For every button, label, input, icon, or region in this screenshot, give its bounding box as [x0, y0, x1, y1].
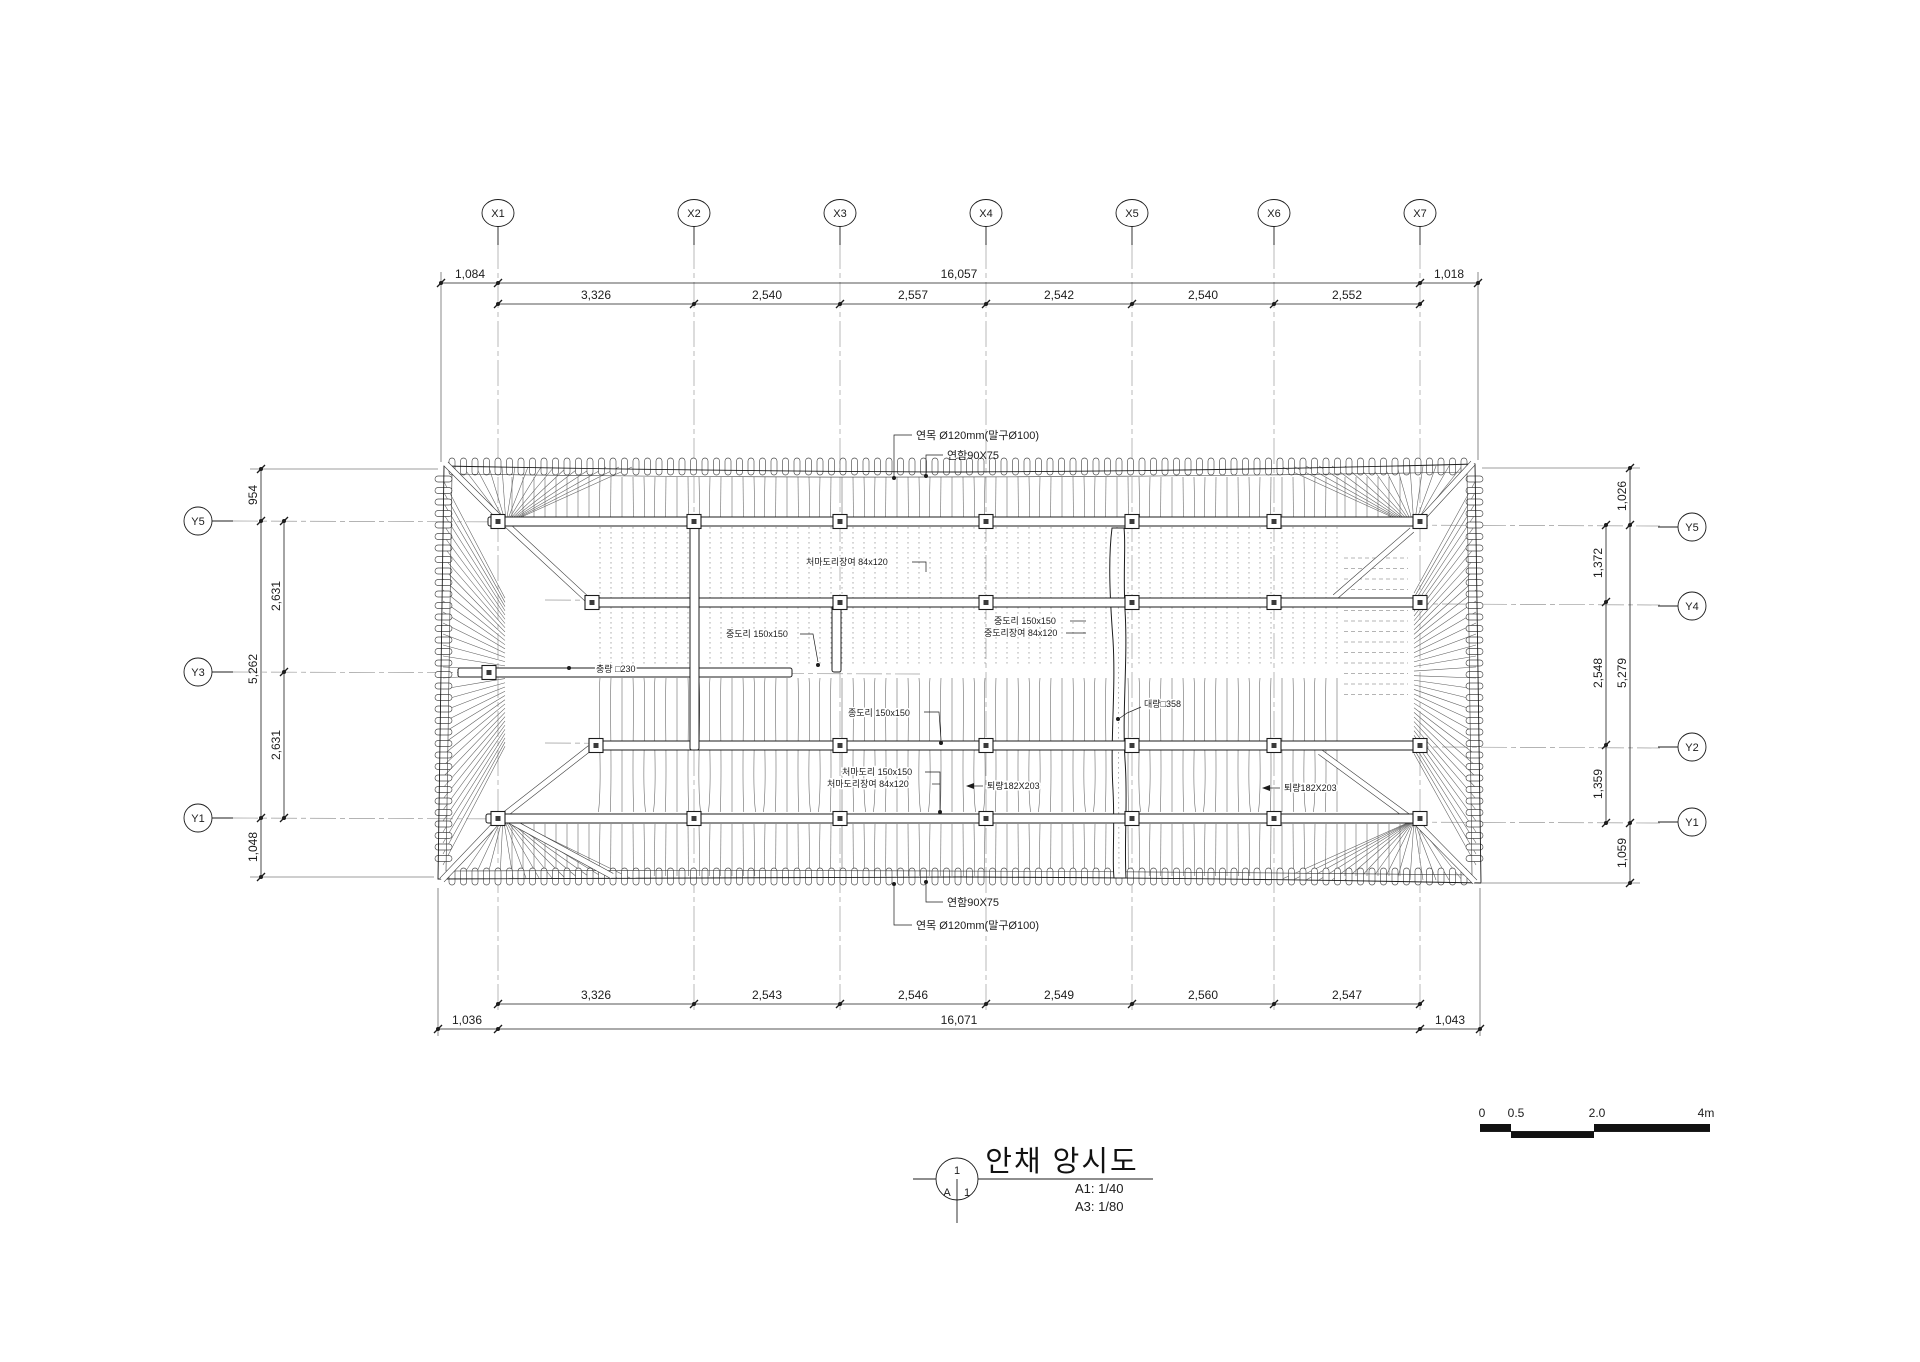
dim-top-outer-2: 16,057	[941, 267, 978, 281]
dim-left-outer-1: 954	[246, 485, 260, 505]
dim-top-inner-5: 2,540	[1188, 288, 1218, 302]
dim-bottom-inner-1: 3,326	[581, 988, 611, 1002]
scale-bar-label-4m: 4m	[1698, 1106, 1715, 1120]
label-toeryang-right: 퇴량182X203	[1284, 782, 1337, 793]
dim-bottom-outer-1: 1,036	[452, 1013, 482, 1027]
grid-bubble-x3: X3	[824, 200, 856, 227]
annotation-top-fascia: 연함90X75	[947, 449, 999, 462]
grid-bubble-y4-right: Y4	[1678, 592, 1706, 620]
label-eave-purlin-bottom: 처마도리 150x150	[842, 766, 912, 777]
label-ridge-purlin: 종도리 150x150	[848, 708, 910, 718]
grid-label-y2-right: Y2	[1685, 742, 1698, 754]
title-figure-number: 1	[954, 1165, 960, 1177]
dim-top-inner-4: 2,542	[1044, 288, 1074, 302]
grid-label-x2: X2	[687, 208, 700, 220]
roof-plan-canvas: X1 X2 X3 X4 X5 X6 X7 Y5 Y3 Y1 Y5 Y4 Y2 Y…	[0, 0, 1920, 1357]
scale-a1: A1: 1/40	[1075, 1181, 1123, 1196]
grid-bubble-x6: X6	[1258, 200, 1290, 227]
dim-bottom-inner-3: 2,546	[898, 988, 928, 1002]
dim-right-outer-2: 5,279	[1615, 658, 1629, 688]
grid-label-y4-right: Y4	[1685, 601, 1698, 613]
grid-label-x3: X3	[833, 208, 846, 220]
label-toeryang-mid: 퇴량182X203	[987, 780, 1040, 791]
dim-top-inner-1: 3,326	[581, 288, 611, 302]
label-eave-purlin-support-top: 처마도리장여 84x120	[806, 556, 888, 567]
grid-bubble-x5: X5	[1116, 200, 1148, 227]
grid-bubble-y5-left: Y5	[184, 507, 212, 535]
dim-bottom-inner-2: 2,543	[752, 988, 782, 1002]
annotation-bottom-rafter: 연목 Ø120mm(말구Ø100)	[916, 919, 1039, 932]
scale-bar-label-05: 0.5	[1508, 1106, 1525, 1120]
grid-label-x7: X7	[1413, 208, 1426, 220]
grid-label-y1-right: Y1	[1685, 817, 1698, 829]
grid-bubble-y1-left: Y1	[184, 804, 212, 832]
grid-label-y3-left: Y3	[191, 667, 204, 679]
dim-left-outer-3: 1,048	[246, 832, 260, 862]
label-mid-purlin-left: 중도리 150x150	[726, 629, 788, 639]
scale-bar-label-20: 2.0	[1589, 1106, 1606, 1120]
grid-label-y5-left: Y5	[191, 516, 204, 528]
annotation-top-rafter: 연목 Ø120mm(말구Ø100)	[916, 429, 1039, 442]
grid-label-x6: X6	[1267, 208, 1280, 220]
dim-top-inner-3: 2,557	[898, 288, 928, 302]
drawing-sheet: X1 X2 X3 X4 X5 X6 X7 Y5 Y3 Y1 Y5 Y4 Y2 Y…	[0, 0, 1920, 1362]
dim-left-inner-2: 2,631	[269, 730, 283, 760]
dim-top-outer-3: 1,018	[1434, 267, 1464, 281]
annotation-bottom-fascia: 연함90X75	[947, 896, 999, 909]
grid-bubble-y5-right: Y5	[1678, 513, 1706, 541]
drawing-title: 안채 앙시도	[985, 1146, 1138, 1178]
grid-bubble-y2-right: Y2	[1678, 733, 1706, 761]
dim-bottom-outer-2: 16,071	[941, 1013, 978, 1027]
dim-top-inner-6: 2,552	[1332, 288, 1362, 302]
texts: X1 X2 X3 X4 X5 X6 X7 Y5 Y3 Y1 Y5 Y4 Y2 Y…	[184, 200, 1714, 1224]
grid-label-x1: X1	[491, 208, 504, 220]
label-chungryang: 충량 □230	[596, 663, 636, 674]
scale-bar-label-0: 0	[1479, 1106, 1486, 1120]
title-block: 1 A 1 안채 앙시도 A1: 1/40 A3: 1/80	[913, 1146, 1153, 1223]
grid-bubble-x7: X7	[1404, 200, 1436, 227]
label-daeryang: 대량□358	[1144, 698, 1181, 709]
dim-bottom-inner-6: 2,547	[1332, 988, 1362, 1002]
dim-bottom-outer-3: 1,043	[1435, 1013, 1465, 1027]
grid-bubble-y3-left: Y3	[184, 658, 212, 686]
grid-bubble-x2: X2	[678, 200, 710, 227]
grid-lines	[212, 227, 1678, 1011]
label-mid-purlin-support: 중도리장여 84x120	[984, 627, 1057, 638]
dim-bottom-inner-5: 2,560	[1188, 988, 1218, 1002]
dim-left-outer-2: 5,262	[246, 654, 260, 684]
grid-label-y5-right: Y5	[1685, 522, 1698, 534]
grid-label-x5: X5	[1125, 208, 1138, 220]
dim-top-inner-2: 2,540	[752, 288, 782, 302]
grid-label-y1-left: Y1	[191, 813, 204, 825]
grid-label-x4: X4	[979, 208, 992, 220]
title-sheet-letter: A	[943, 1187, 951, 1199]
roof-structure	[435, 458, 1483, 885]
grid-bubble-y1-right: Y1	[1678, 808, 1706, 836]
dim-left-inner-1: 2,631	[269, 581, 283, 611]
scale-bar: 0 0.5 2.0 4m	[1479, 1106, 1715, 1138]
dim-top-outer-1: 1,084	[455, 267, 485, 281]
dim-right-outer-1: 1,026	[1615, 481, 1629, 511]
dim-right-inner-1: 1,372	[1591, 548, 1605, 578]
dim-bottom-inner-4: 2,549	[1044, 988, 1074, 1002]
dim-right-outer-3: 1,059	[1615, 838, 1629, 868]
grid-bubble-x1: X1	[482, 200, 514, 227]
dim-right-inner-2: 2,548	[1591, 658, 1605, 688]
scale-a3: A3: 1/80	[1075, 1199, 1123, 1214]
dim-right-inner-3: 1,359	[1591, 769, 1605, 799]
label-mid-purlin-right: 중도리 150x150	[994, 616, 1056, 626]
title-sheet-index: 1	[964, 1187, 970, 1199]
label-eave-purlin-support-bottom: 처마도리장여 84x120	[827, 778, 909, 789]
grid-bubble-x4: X4	[970, 200, 1002, 227]
